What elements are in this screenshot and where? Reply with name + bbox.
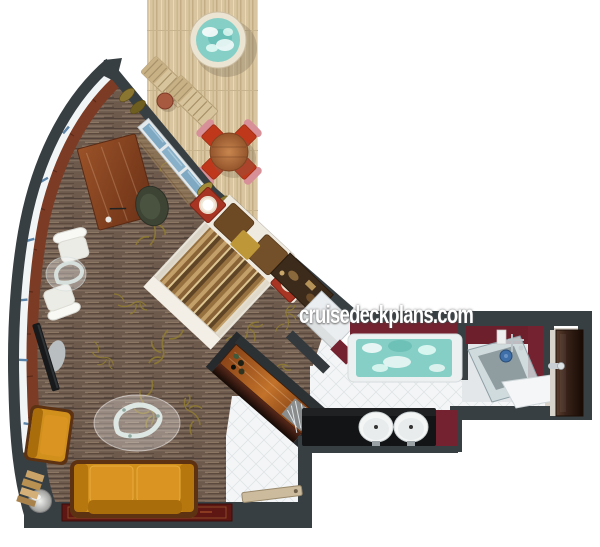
coffee-table (94, 395, 180, 451)
entrance-door (548, 330, 583, 416)
orange-armchair (23, 404, 74, 466)
door-handle (548, 363, 565, 370)
bathtub (348, 322, 462, 382)
sofa (70, 460, 198, 518)
floorplan-image: cruisedeckplans.com (0, 0, 600, 547)
vanity-sinks (302, 408, 458, 446)
watermark: cruisedeckplans.com (299, 301, 473, 330)
floorplan-svg (0, 0, 600, 547)
glass-side-table (46, 257, 86, 291)
